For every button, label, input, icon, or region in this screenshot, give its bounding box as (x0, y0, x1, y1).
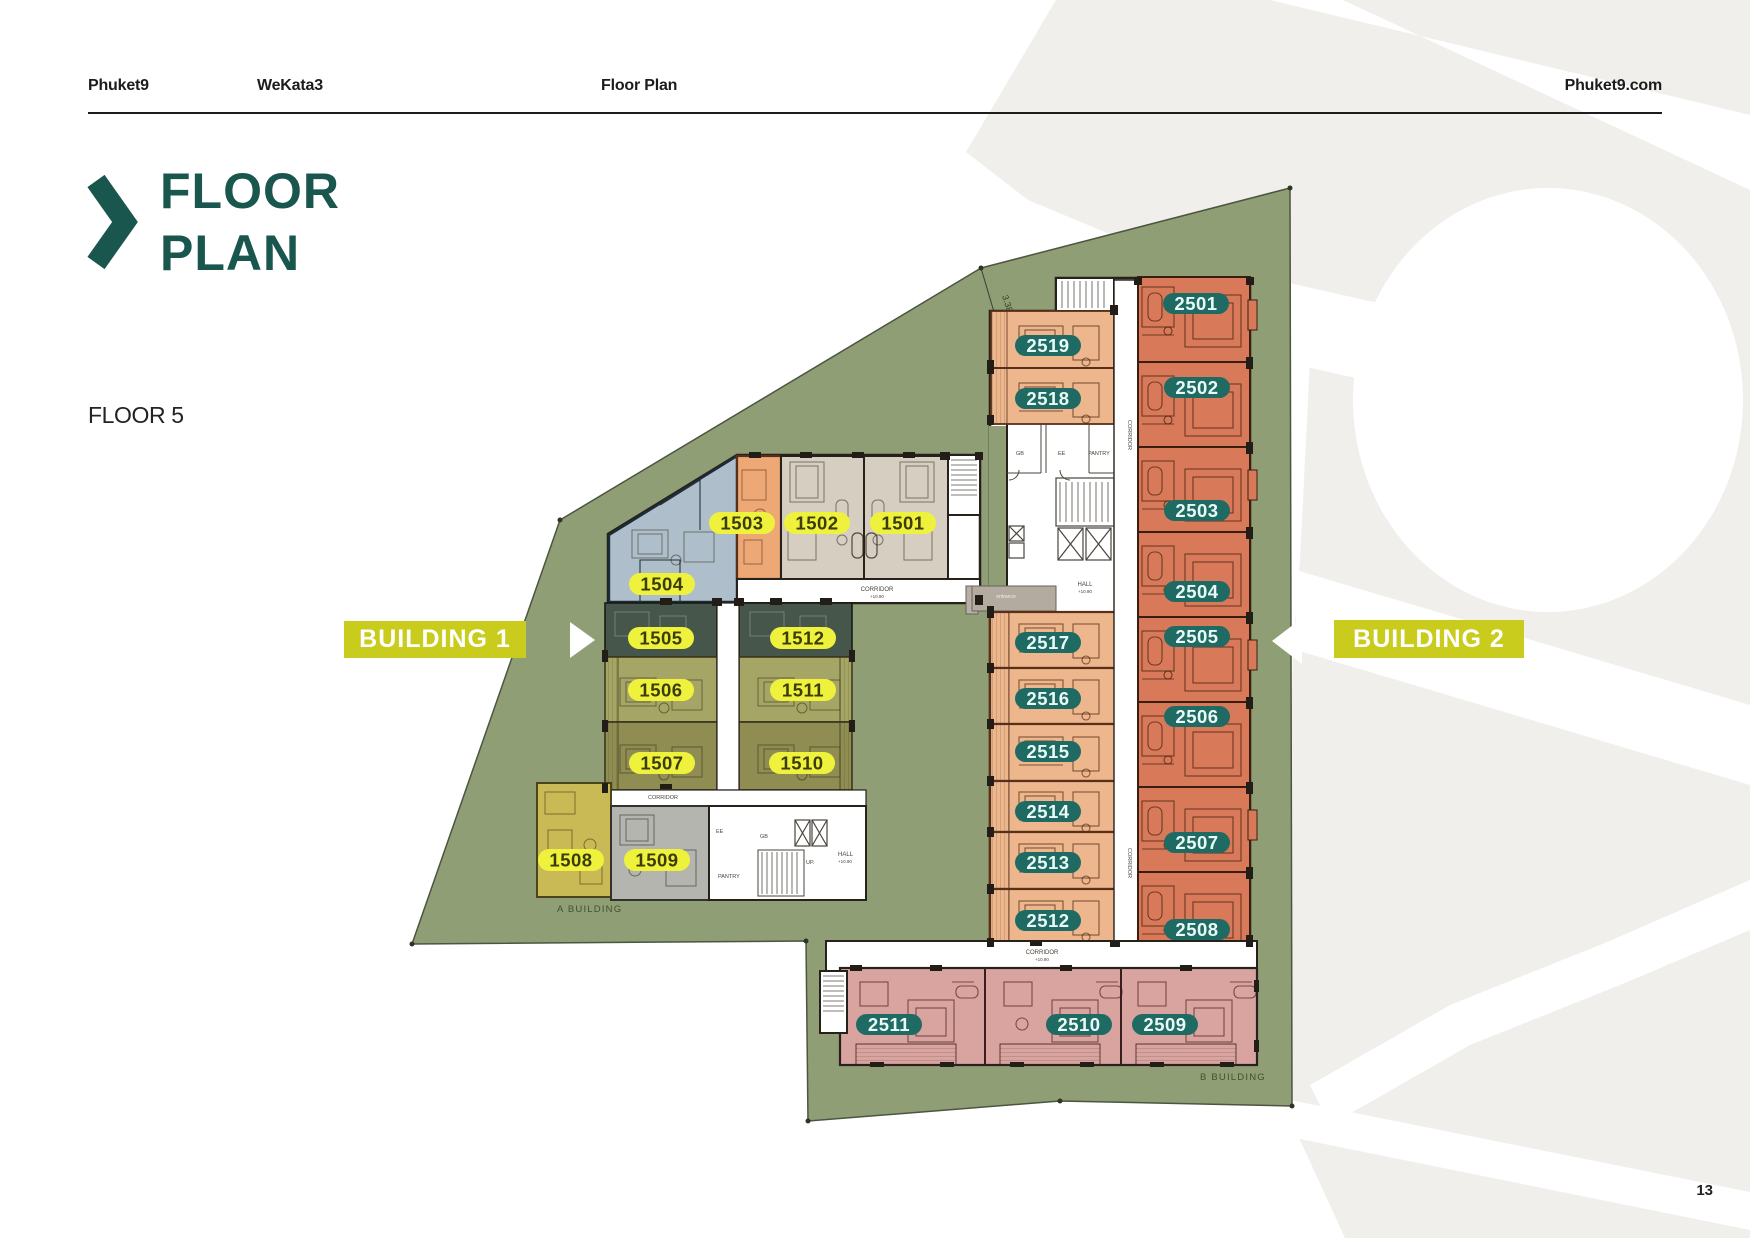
svg-text:PANTRY: PANTRY (1088, 451, 1110, 457)
svg-text:+10.90: +10.90 (1035, 957, 1049, 962)
svg-text:GB: GB (1016, 451, 1024, 457)
svg-text:BUILDING 2: BUILDING 2 (1353, 625, 1505, 653)
svg-text:EE: EE (1058, 451, 1066, 457)
svg-text:CORRIDOR: CORRIDOR (1026, 950, 1059, 956)
svg-text:PANTRY: PANTRY (718, 874, 740, 880)
svg-text:1501: 1501 (881, 513, 924, 534)
svg-text:CORRIDOR: CORRIDOR (861, 587, 894, 593)
svg-text:1510: 1510 (780, 753, 823, 774)
svg-text:+10.90: +10.90 (838, 859, 852, 864)
svg-text:+10.90: +10.90 (870, 594, 884, 599)
svg-text:1504: 1504 (640, 574, 683, 595)
svg-text:1508: 1508 (549, 850, 592, 871)
svg-text:HALL: HALL (1077, 582, 1093, 588)
svg-text:2501: 2501 (1174, 293, 1217, 314)
svg-text:2510: 2510 (1057, 1014, 1100, 1035)
svg-text:2511: 2511 (868, 1014, 910, 1035)
svg-text:2505: 2505 (1175, 626, 1218, 647)
svg-text:B BUILDING: B BUILDING (1200, 1072, 1266, 1083)
svg-text:2514: 2514 (1026, 801, 1069, 822)
svg-text:1511: 1511 (782, 680, 824, 701)
svg-text:1506: 1506 (639, 680, 682, 701)
svg-text:2508: 2508 (1175, 919, 1218, 940)
svg-text:1509: 1509 (635, 850, 678, 871)
svg-text:2503: 2503 (1175, 500, 1218, 521)
svg-text:CORRIDOR: CORRIDOR (1126, 420, 1132, 450)
svg-text:BUILDING 1: BUILDING 1 (359, 625, 511, 653)
svg-text:EE: EE (716, 829, 724, 835)
svg-text:2512: 2512 (1026, 910, 1069, 931)
svg-text:2517: 2517 (1026, 632, 1069, 653)
svg-text:+10.90: +10.90 (1078, 589, 1092, 594)
svg-text:1512: 1512 (781, 628, 824, 649)
svg-text:2518: 2518 (1026, 388, 1069, 409)
svg-text:2504: 2504 (1175, 581, 1218, 602)
svg-text:2507: 2507 (1175, 832, 1218, 853)
svg-text:2509: 2509 (1143, 1014, 1186, 1035)
svg-text:HALL: HALL (838, 852, 854, 858)
svg-text:1507: 1507 (640, 753, 683, 774)
svg-text:1503: 1503 (720, 513, 763, 534)
svg-text:A BUILDING: A BUILDING (557, 904, 622, 915)
svg-text:2502: 2502 (1175, 377, 1218, 398)
svg-text:entrance: entrance (996, 594, 1016, 600)
svg-text:CORRIDOR: CORRIDOR (648, 795, 678, 801)
svg-text:2515: 2515 (1026, 741, 1069, 762)
svg-text:CORRIDOR: CORRIDOR (1126, 848, 1132, 878)
svg-text:2519: 2519 (1026, 335, 1069, 356)
svg-text:GB: GB (760, 834, 768, 840)
svg-text:2513: 2513 (1026, 852, 1069, 873)
svg-text:1502: 1502 (795, 513, 838, 534)
svg-text:1505: 1505 (639, 628, 682, 649)
svg-text:2516: 2516 (1026, 688, 1069, 709)
svg-text:UP.: UP. (806, 860, 815, 866)
svg-text:2506: 2506 (1175, 706, 1218, 727)
